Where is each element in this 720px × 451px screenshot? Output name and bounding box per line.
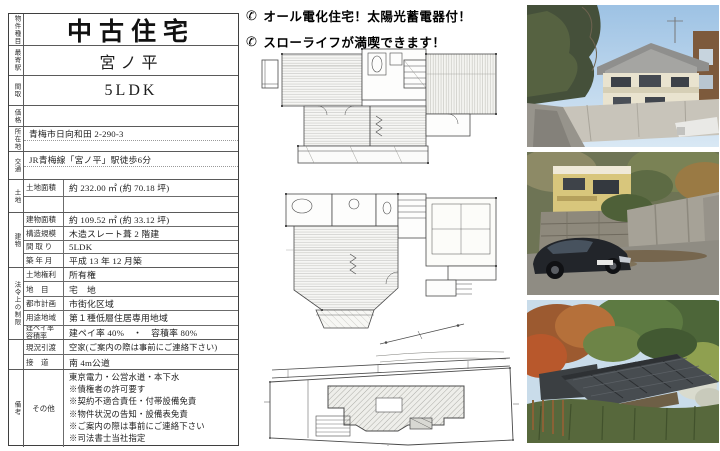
row-station: 最寄駅 宮ノ平 [9,46,238,76]
group-condition: 現況引渡 空家(ご案内の際は事前にご連絡下さい) 接 道 南 4m公道 [9,340,238,370]
madori-value: 5LDK [105,82,158,100]
land-right-row: 土地権利 所有権 [24,268,238,282]
zoning-row: 用途地域 第１種低層住居専用地域 [24,311,238,325]
group-legal: 法令上の制限 土地権利 所有権 地 目 宅 地 都市計画 市街化区域 用途地域 … [9,268,238,340]
land-right-label: 土地権利 [24,268,64,281]
structure-row: 構造規模 木造スレート葺 2 階建 [24,227,238,241]
row-label: 所在地 [9,127,24,151]
land-blank-row [24,197,238,213]
frontage-value: 南 4m公道 [64,355,238,369]
remarks-lines: 東京電力・公営水道・本下水 ※債権者の許可要す ※契約不適合責任・付帯設備免責 … [64,370,238,447]
current-state-label: 現況引渡 [24,340,64,354]
land-right-value: 所有権 [64,268,238,281]
property-spec-table: 物件種目 中古住宅 最寄駅 宮ノ平 間取 5LDK 価格 所在地 青梅市日向和田… [8,13,239,446]
madori-detail-row: 間 取 り 5LDK [24,241,238,255]
phone-icon: ✆ [246,8,257,24]
garden-roof-image [527,300,719,443]
row-madori: 間取 5LDK [9,76,238,106]
parking-and-car-photo [527,152,719,295]
row-property-type: 物件種目 中古住宅 [9,14,238,46]
station-value: 宮ノ平 [99,49,162,73]
land-area-value: 約 232.00 ㎡ (約 70.18 坪) [64,180,238,196]
group-remarks: 備考 その他 東京電力・公営水道・本下水 ※債権者の許可要す ※契約不適合責任・… [9,370,238,447]
remarks-line: ※司法書士当社指定 [69,433,238,445]
madori-detail-label: 間 取 り [24,241,64,254]
address-blank [24,141,238,151]
house-exterior-image [527,5,719,147]
remarks-line: ※ご案内の際は事前にご連絡下さい [69,421,238,433]
remarks-line: ※契約不適合責任・付帯設備免責 [69,396,238,408]
coverage-ratio-value: 建ペイ率 40% ・ 容積率 80% [64,326,238,339]
group-label: 法令上の制限 [9,268,24,339]
frontage-label: 接 道 [24,355,64,369]
row-label: 最寄駅 [9,46,24,75]
plan-drawings-svg [258,44,522,446]
frontage-row: 接 道 南 4m公道 [24,355,238,369]
built-date-row: 築 年 月 平成 13 年 12 月築 [24,254,238,267]
coverage-ratio-row: 建ペイ率 容積率 建ペイ率 40% ・ 容積率 80% [24,326,238,339]
row-price: 価格 [9,106,238,127]
blank-group-label [9,340,24,369]
property-type-value: 中古住宅 [67,14,195,45]
access-blank [24,167,238,179]
group-label: 建物 [9,213,24,267]
remarks-line: ※債権者の許可要す [69,384,238,396]
structure-label: 構造規模 [24,227,64,240]
coverage-label-line2: 容積率 [26,332,54,339]
headline-1: ✆ オール電化住宅！太陽光蓄電器付！ [246,6,516,25]
building-area-value: 約 109.52 ㎡ (約 33.12 坪) [64,213,238,226]
built-date-label: 築 年 月 [24,254,64,267]
remarks-row: その他 東京電力・公営水道・本下水 ※債権者の許可要す ※契約不適合責任・付帯設… [24,370,238,447]
structure-value: 木造スレート葺 2 階建 [64,227,238,240]
row-label: 間取 [9,76,24,105]
parking-car-image [527,152,719,295]
building-area-row: 建物面積 約 109.52 ㎡ (約 33.12 坪) [24,213,238,227]
remarks-line: 東京電力・公営水道・本下水 [69,372,238,384]
row-label: 価格 [9,106,24,126]
row-access: 交通 JR青梅線「宮ノ平」駅徒歩6分 [9,152,238,180]
row-label: 物件種目 [9,14,24,45]
address-value: 青梅市日向和田 2-290-3 [24,127,238,141]
row-label: 交通 [9,152,24,179]
city-plan-value: 市街化区域 [64,297,238,310]
building-area-label: 建物面積 [24,213,64,226]
first-floor-plan [285,193,497,328]
price-value [24,106,238,126]
blank-cell [64,197,238,213]
current-state-value: 空家(ご案内の際は事前にご連絡下さい) [64,340,238,354]
land-area-label: 土地面積 [24,180,64,196]
current-state-row: 現況引渡 空家(ご案内の際は事前にご連絡下さい) [24,340,238,355]
plan-drawings [258,44,522,446]
access-value: JR青梅線「宮ノ平」駅徒歩6分 [24,152,238,167]
zoning-label: 用途地域 [24,311,64,324]
built-date-value: 平成 13 年 12 月築 [64,254,238,267]
headline-1-text: オール電化住宅！太陽光蓄電器付！ [263,6,471,25]
city-plan-row: 都市計画 市街化区域 [24,297,238,311]
house-exterior-photo [527,5,719,147]
row-address: 所在地 青梅市日向和田 2-290-3 [9,127,238,152]
coverage-ratio-label: 建ペイ率 容積率 [24,326,64,339]
second-floor-plan [262,48,497,164]
blank-cell [24,197,64,213]
zoning-value: 第１種低層住居専用地域 [64,311,238,324]
land-category-label: 地 目 [24,282,64,295]
madori-detail-value: 5LDK [64,241,238,254]
group-label: 備考 [9,370,24,447]
site-plan [264,324,519,446]
group-label: 土地 [9,180,24,212]
land-category-row: 地 目 宅 地 [24,282,238,296]
city-plan-label: 都市計画 [24,297,64,310]
remarks-line: ※物件状況の告知・設備表免責 [69,409,238,421]
land-area-row: 土地面積 約 232.00 ㎡ (約 70.18 坪) [24,180,238,197]
remarks-label: その他 [24,370,64,447]
group-land: 土地 土地面積 約 232.00 ㎡ (約 70.18 坪) [9,180,238,213]
garden-and-roof-photo [527,300,719,443]
land-category-value: 宅 地 [64,282,238,295]
group-building: 建物 建物面積 約 109.52 ㎡ (約 33.12 坪) 構造規模 木造スレ… [9,213,238,268]
phone-icon: ✆ [246,34,257,50]
